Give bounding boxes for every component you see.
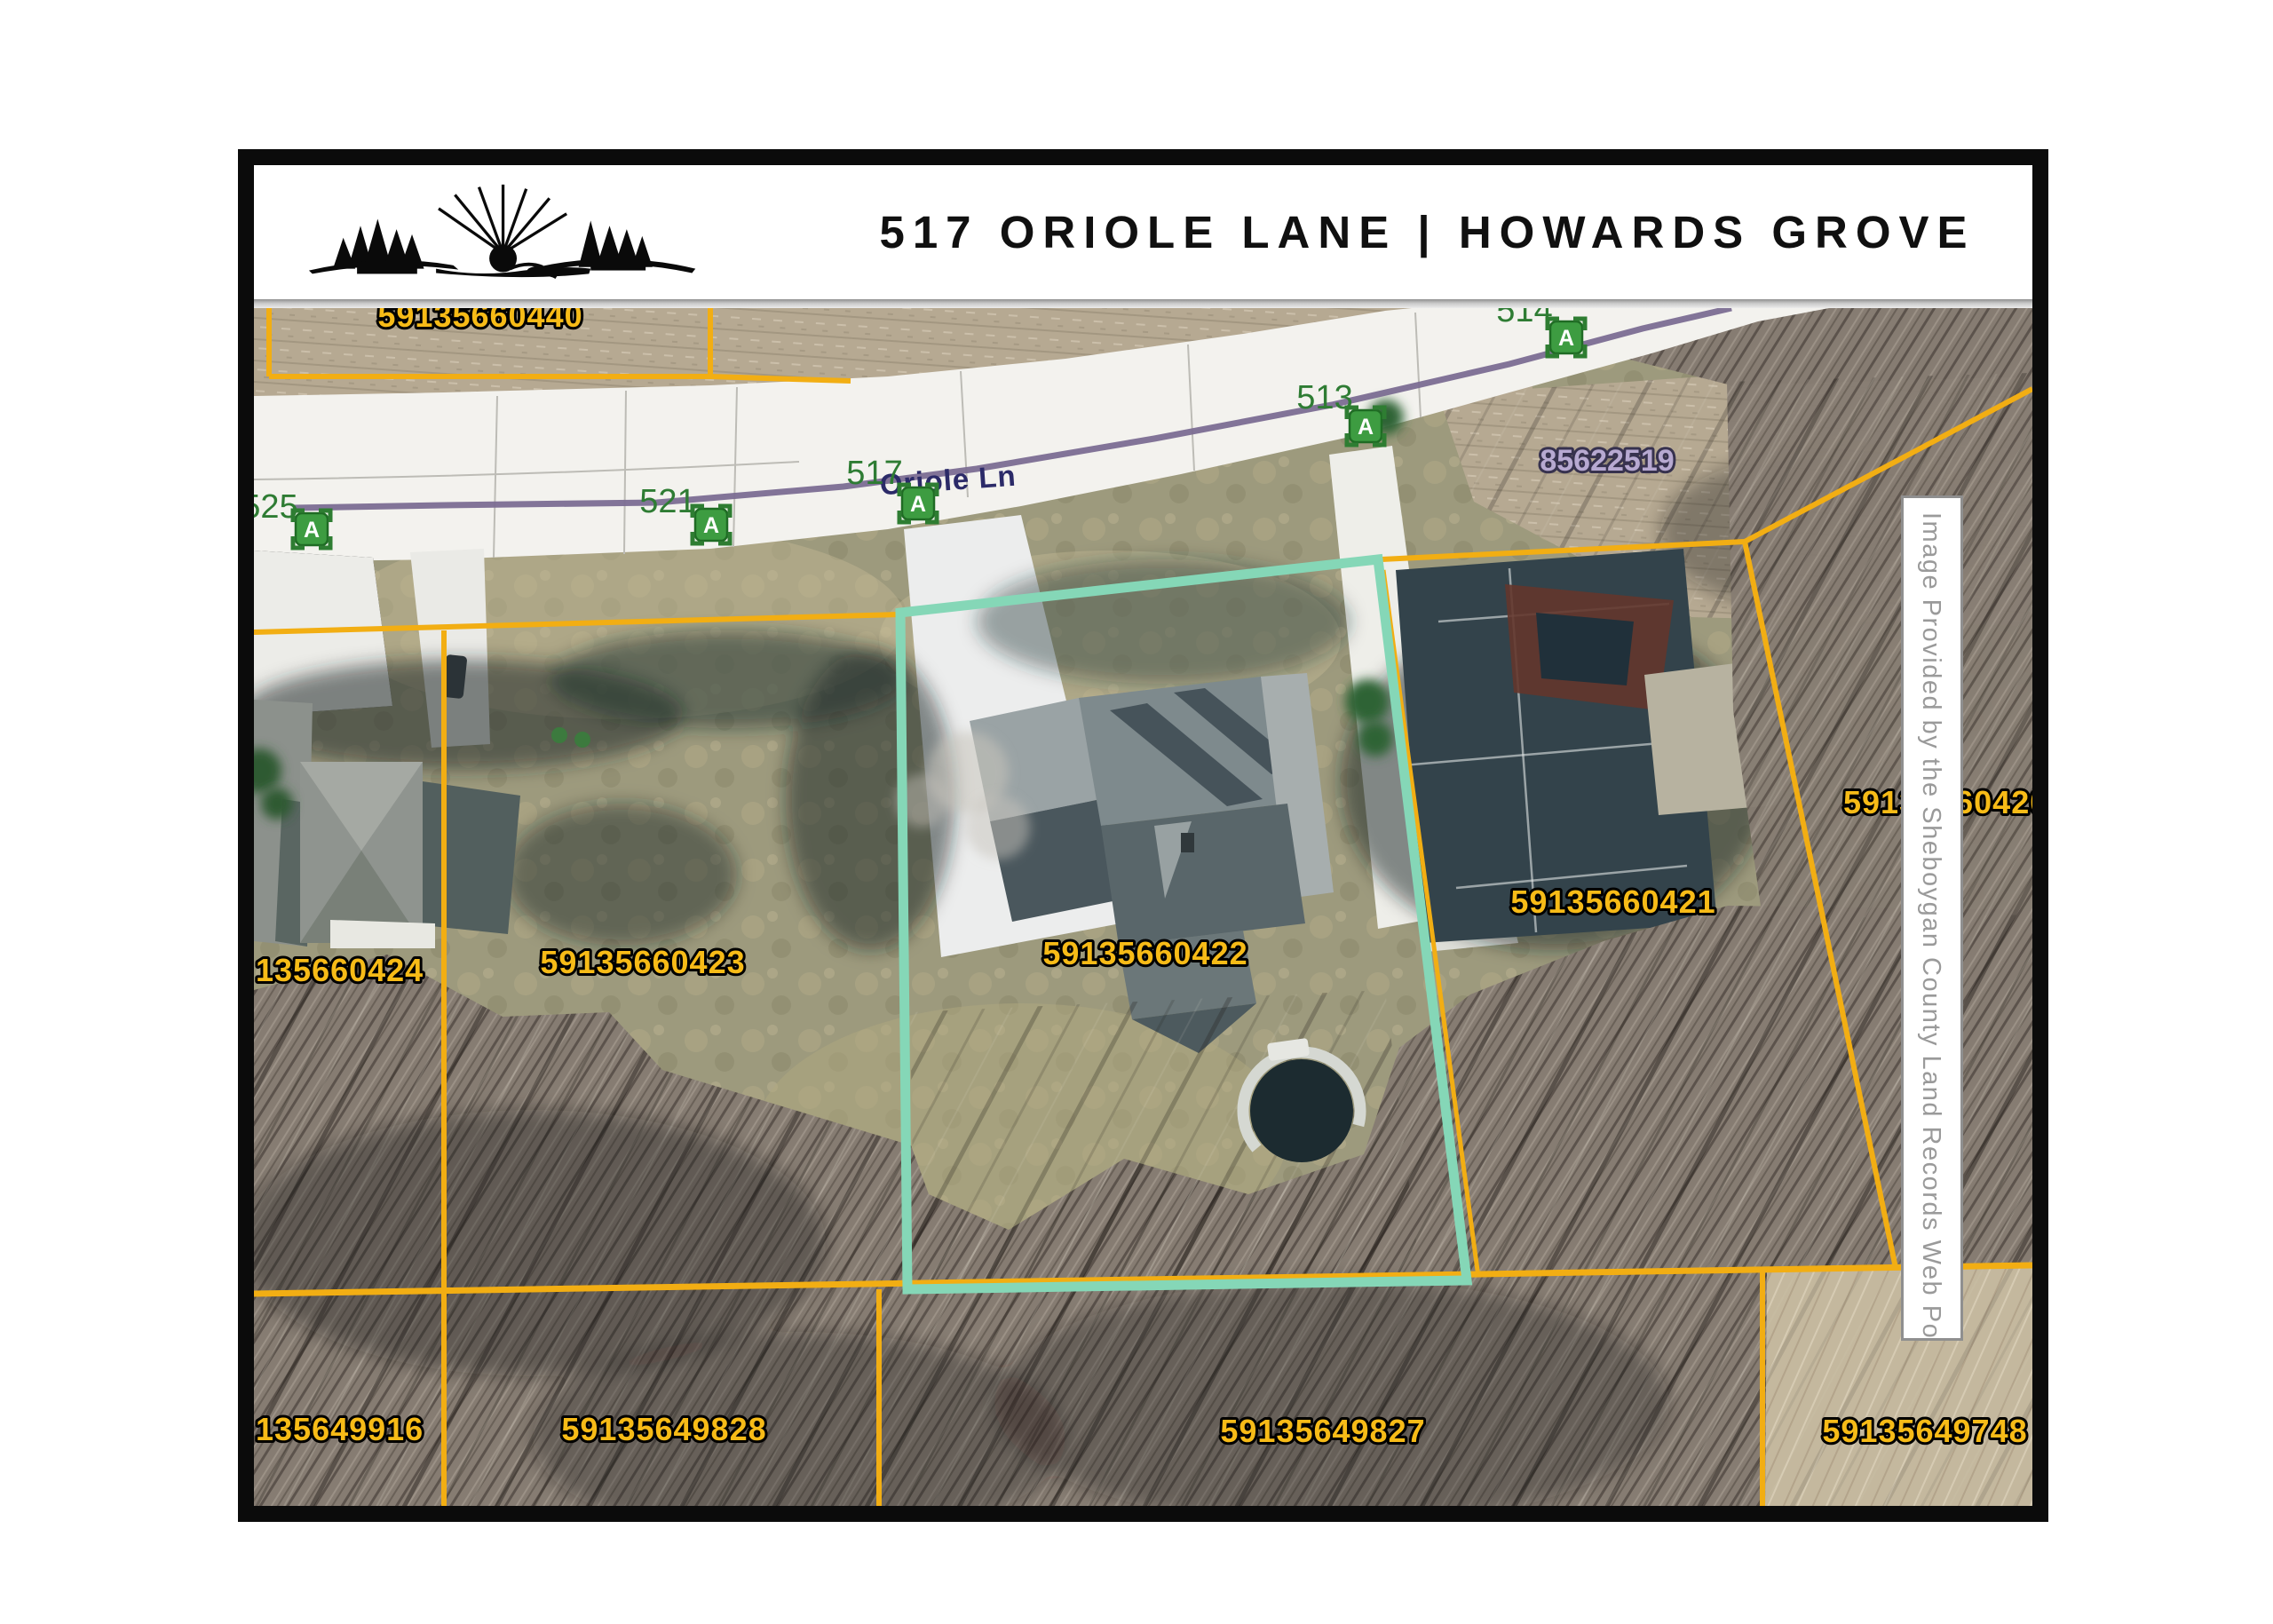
address-marker-icon: A xyxy=(1548,319,1585,356)
house-number-521: 521 xyxy=(639,483,695,520)
svg-text:A: A xyxy=(304,518,320,543)
parcel-label-59135649827: 59135649827 xyxy=(1220,1413,1425,1449)
parcel-label-59135660423: 59135660423 xyxy=(540,944,745,980)
house-number-513: 513 xyxy=(1296,379,1352,416)
house-number-514: 514 xyxy=(1496,308,1552,329)
image-credit-text: Image Provided by the Sheboygan County L… xyxy=(1904,498,1959,1341)
svg-text:A: A xyxy=(1558,326,1574,351)
pine-trees-sunrise-logo xyxy=(307,183,702,282)
aerial-scene: Oriole Ln 59135660440 135660424 59135660… xyxy=(254,308,2032,1506)
parcel-label-59135649748: 59135649748 xyxy=(1822,1413,2027,1449)
woods-right xyxy=(1727,373,2032,919)
aerial-parcel-map: Oriole Ln 59135660440 135660424 59135660… xyxy=(254,308,2032,1506)
parcel-label-85622519: 85622519 xyxy=(1540,444,1674,478)
parcel-label-59135660421: 59135660421 xyxy=(1510,883,1715,920)
svg-text:A: A xyxy=(910,492,926,517)
parcel-label-59135660440: 59135660440 xyxy=(377,308,582,334)
header-divider xyxy=(254,299,2032,308)
address-marker-icon: A xyxy=(293,511,330,548)
parcel-label-59135660422: 59135660422 xyxy=(1042,935,1247,971)
address-marker-icon: A xyxy=(899,485,937,522)
page-title: 517 ORIOLE LANE | HOWARDS GROVE xyxy=(702,206,2032,258)
header-banner: 517 ORIOLE LANE | HOWARDS GROVE xyxy=(254,165,2032,299)
svg-text:A: A xyxy=(1358,415,1374,440)
parcel-label-135660424: 135660424 xyxy=(256,952,424,988)
parcel-label-59135649828: 59135649828 xyxy=(561,1411,766,1447)
parcel-label-135649916: 135649916 xyxy=(256,1411,424,1447)
image-credit-sidebar: Image Provided by the Sheboygan County L… xyxy=(1901,495,1963,1341)
address-marker-icon: A xyxy=(693,506,730,543)
house-number-517: 517 xyxy=(846,455,902,492)
address-marker-icon: A xyxy=(1347,408,1384,445)
svg-text:A: A xyxy=(703,513,719,538)
flyer-card: 517 ORIOLE LANE | HOWARDS GROVE xyxy=(238,149,2048,1522)
